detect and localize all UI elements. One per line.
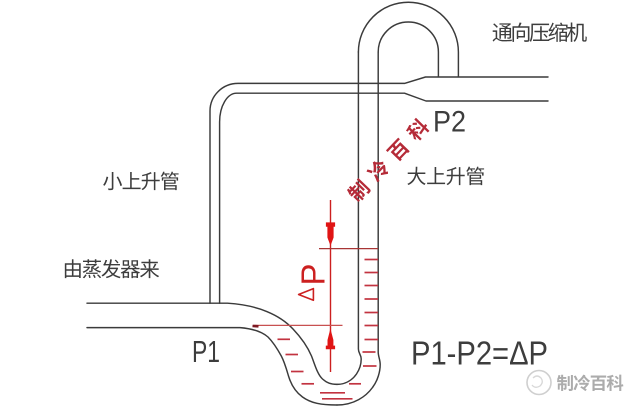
svg-text:P: P (295, 263, 332, 285)
svg-text:P1-P2=ΔP: P1-P2=ΔP (411, 335, 548, 372)
svg-text:P2: P2 (433, 106, 466, 139)
svg-text:P1: P1 (192, 334, 220, 369)
